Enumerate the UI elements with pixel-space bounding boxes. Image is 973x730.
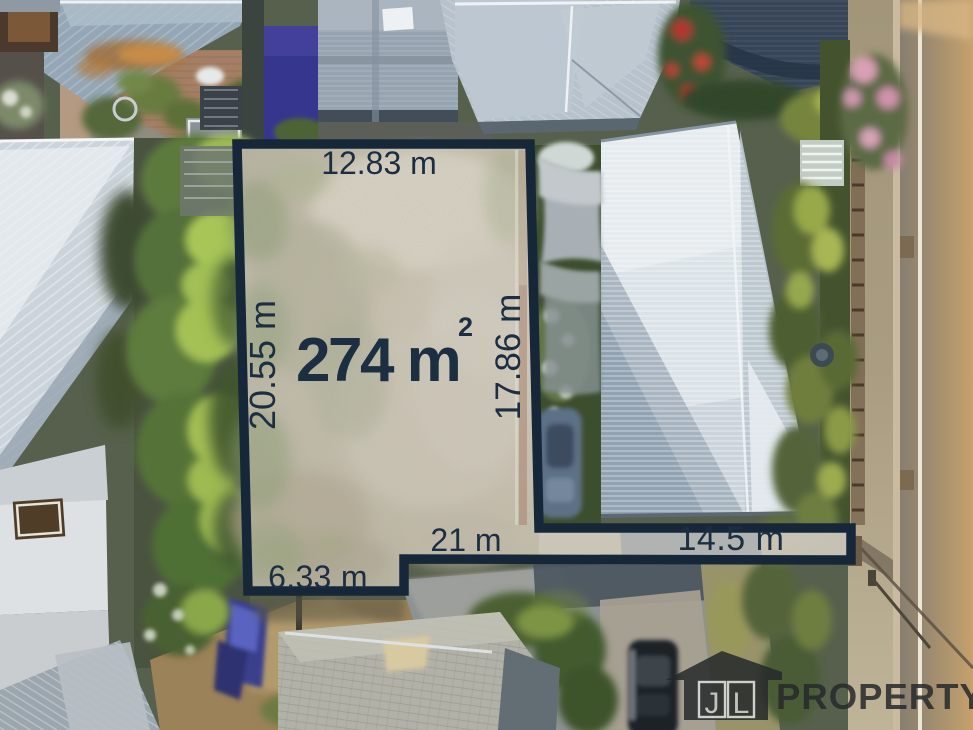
svg-text:6.33 m: 6.33 m: [268, 559, 368, 595]
svg-text:14.5 m: 14.5 m: [678, 520, 785, 558]
svg-text:PROPERTY: PROPERTY: [776, 676, 973, 717]
svg-text:L: L: [733, 687, 750, 720]
svg-text:274 m: 274 m: [296, 326, 459, 395]
svg-text:21 m: 21 m: [430, 522, 501, 558]
svg-text:12.83 m: 12.83 m: [321, 145, 437, 181]
svg-text:J: J: [705, 687, 720, 720]
svg-text:2: 2: [458, 312, 473, 342]
svg-text:20.55 m: 20.55 m: [242, 300, 283, 430]
svg-text:17.86 m: 17.86 m: [489, 294, 528, 420]
